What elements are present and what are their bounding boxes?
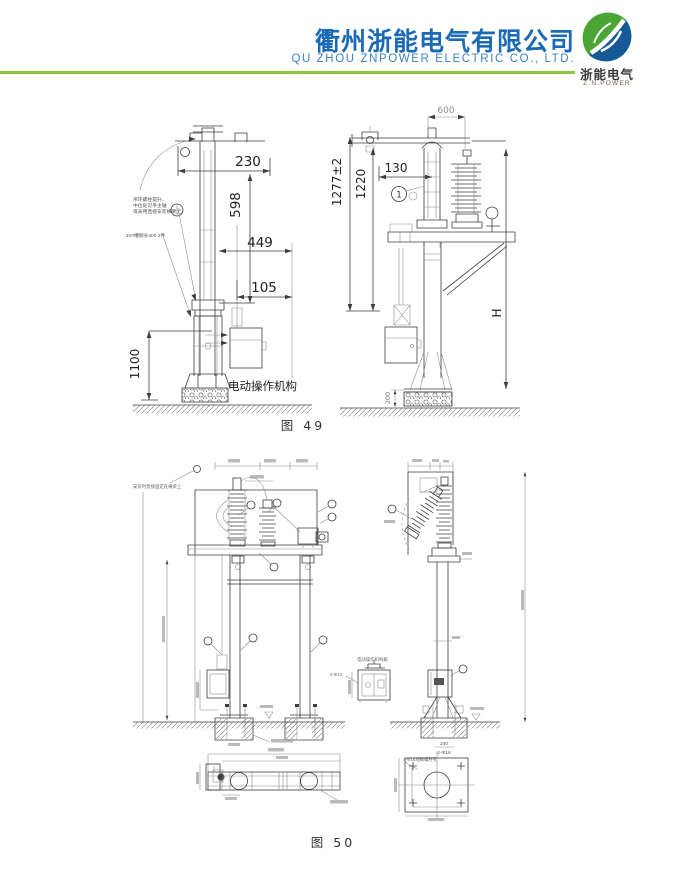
page-header: 衢州浙能电气有限公司 QU ZHOU ZNPOWER ELECTRIC CO.,… xyxy=(0,0,694,90)
fig49-left-notes: 吊环螺栓提升， 中位处可吊主轴 或采用直接安装横梁上。 10#槽钢长300 2件 xyxy=(126,196,198,318)
note-line1: 吊环螺栓提升， xyxy=(133,196,167,203)
fig49-dim-600: 600 xyxy=(428,106,465,148)
company-name-en: QU ZHOU ZNPOWER ELECTRIC CO., LTD. xyxy=(291,53,575,65)
fig49-dim-1220: 1220 xyxy=(354,148,375,311)
dim-H: H xyxy=(490,308,504,317)
fig50-front-balloons xyxy=(204,499,336,654)
dim-1277: 1277±2 xyxy=(330,158,344,206)
fig49-dim-H: H xyxy=(472,141,508,389)
figure-49: 230 598 449 105 xyxy=(126,106,520,433)
fig49-dim-200: 200 xyxy=(384,390,404,407)
fig50-insulator-1 xyxy=(227,478,247,546)
dim-1220: 1220 xyxy=(354,169,368,200)
fig49-dim-105: 105 xyxy=(237,280,292,300)
fig49-left-view: 230 598 449 105 xyxy=(126,126,312,414)
catalog-page: 衢州浙能电气有限公司 QU ZHOU ZNPOWER ELECTRIC CO.,… xyxy=(0,0,694,874)
green-rule xyxy=(0,71,575,74)
dim-230: 230 xyxy=(235,154,261,170)
dim-105: 105 xyxy=(251,280,277,296)
fig50-base-frame-plan xyxy=(196,748,348,804)
fig50-side-view xyxy=(384,459,526,738)
company-logo: 浙能电气 Z.N.POWER xyxy=(576,10,638,90)
fig50-note-top-left: 安装时直接固定在横梁上 xyxy=(133,483,182,490)
fig49-balloon-1: 1 xyxy=(392,186,425,202)
logo-text-en: Z.N.POWER xyxy=(576,80,638,87)
mech-label: 电动操作机构 xyxy=(228,379,297,393)
fig50-base-plate-plan: 240 2-Φ18 4-Φ18地脚螺栓孔 xyxy=(394,741,475,821)
figure-50: 安装时直接固定在横梁上 xyxy=(133,459,526,850)
dim-598: 598 xyxy=(228,192,244,218)
note-line2: 中位处可吊主轴 xyxy=(133,202,167,209)
fig49-dim-449: 449 xyxy=(219,235,292,253)
dim-449: 449 xyxy=(247,235,273,251)
fig49-dim-230: 230 xyxy=(178,146,270,176)
note-bolt: 4-Φ12 xyxy=(330,672,343,677)
dim-130: 130 xyxy=(385,161,408,175)
fig50-caption: 图 50 xyxy=(311,835,355,850)
balloon-1-number: 1 xyxy=(396,191,402,201)
mech-detail-label: 电动操作机构箱 xyxy=(357,656,388,663)
fig49-dim-1277: 1277±2 xyxy=(330,137,380,311)
note-channel-steel: 10#槽钢长300 2件 xyxy=(126,232,165,239)
fig50-front-view: 安装时直接固定在横梁上 xyxy=(133,459,345,746)
plate-dim-top: 240 xyxy=(440,741,448,747)
technical-drawings: 230 598 449 105 xyxy=(0,88,694,874)
dim-1100: 1100 xyxy=(128,349,142,380)
plate-dim-bottom: 2-Φ18 xyxy=(437,750,451,756)
note-plate-holes: 4-Φ18地脚螺栓孔 xyxy=(403,756,438,763)
dim-600: 600 xyxy=(437,106,454,116)
logo-swirl-icon xyxy=(576,10,638,64)
fig49-right-view: 600 1277±2 1220 1 xyxy=(330,106,520,417)
fig50-mech-detail: 电动操作机构箱 4-Φ12 xyxy=(330,656,390,703)
fig50-tilted-insulator xyxy=(404,484,447,538)
fig49-caption: 图 49 xyxy=(281,418,325,433)
note-line3: 或采用直接安装横梁上。 xyxy=(133,208,186,215)
dim-200: 200 xyxy=(384,392,392,404)
